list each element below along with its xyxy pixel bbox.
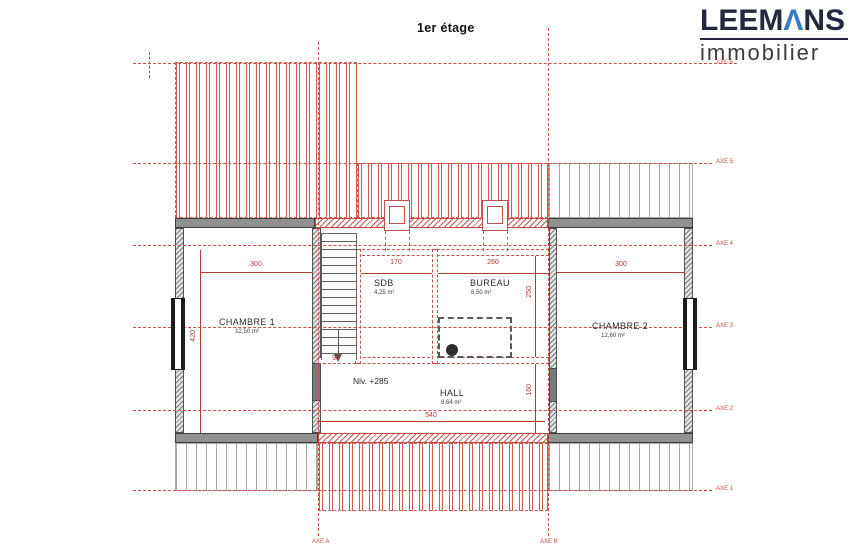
door-opening-chambre1 — [312, 363, 321, 401]
dim-line-hall-width — [317, 421, 545, 422]
axis-label-4: AXE 4 — [716, 241, 733, 248]
room-label-sdb: SDB — [374, 278, 394, 288]
axis-line-B — [548, 28, 549, 536]
room-area-hall: 8,64 m² — [441, 400, 461, 407]
window-chambre1-icon — [171, 298, 185, 370]
dim-bureau-width: 260 — [487, 259, 499, 267]
room-label-bureau: BUREAU — [470, 278, 510, 288]
roof-hatch-top-left — [175, 62, 357, 218]
dim-line-chambre2-width — [557, 272, 685, 273]
dim-line-chambre1-width — [200, 272, 313, 273]
room-label-hall: HALL — [440, 388, 464, 398]
room-area-bureau: 6,50 m² — [471, 290, 491, 297]
drain-point-icon — [446, 344, 458, 356]
duct-box-left-inner — [389, 206, 405, 224]
wall-top-middle — [315, 218, 548, 228]
room-area-sdb: 4,25 m² — [374, 290, 394, 297]
duct-box-left — [384, 200, 410, 231]
axis-label-A: AXE A — [312, 539, 329, 546]
axis-label-3: AXE 3 — [716, 323, 733, 330]
dim-sdb-width: 170 — [390, 259, 402, 267]
window-chambre2-icon — [683, 298, 697, 370]
staircase — [321, 233, 357, 360]
dim-line-bureau-depth — [535, 256, 536, 357]
stair-direction-arrow — [338, 330, 339, 356]
wall-bottom-right — [548, 433, 693, 443]
axis-stub-left — [149, 52, 150, 78]
dim-bureau-depth: 250 — [526, 286, 534, 298]
wall-hall-right — [549, 228, 557, 433]
axis-label-1: AXE 1 — [716, 486, 733, 493]
axis-line-1 — [133, 490, 712, 491]
logo-accent-letter: Λ — [783, 4, 803, 37]
roof-hatch-top-right — [548, 163, 693, 218]
duct-extension-line — [385, 231, 386, 251]
duct-box-right — [482, 200, 508, 231]
logo-text-pre: LEEM — [700, 4, 783, 37]
duct-extension-line — [507, 231, 508, 251]
logo: LEEMΛNS immobilier — [700, 6, 848, 65]
dim-line-bureau-width — [438, 273, 549, 274]
wall-bottom-middle — [318, 433, 548, 443]
axis-label-B: AXE B — [540, 539, 558, 546]
dim-line-chambre1-depth — [200, 250, 201, 433]
dim-line-sdb-width — [361, 273, 432, 274]
duct-extension-line — [409, 231, 410, 251]
axis-line-2 — [133, 410, 712, 411]
door-opening-chambre2 — [549, 368, 557, 402]
wall-top-left — [175, 218, 315, 228]
dim-stair-width: 90 — [332, 355, 340, 363]
room-label-chambre2: CHAMBRE 2 — [592, 321, 648, 331]
axis-line-6 — [133, 63, 737, 64]
page-title: 1er étage — [417, 21, 475, 35]
duct-extension-line — [483, 231, 484, 251]
dim-line-hall-depth — [535, 364, 536, 433]
logo-text-post: NS — [803, 4, 845, 37]
roof-hatch-bottom-right — [548, 443, 693, 491]
logo-subtitle: immobilier — [700, 41, 848, 65]
dim-hall-depth: 160 — [526, 384, 534, 396]
roof-hatch-bottom-left — [175, 443, 318, 491]
wall-top-right — [548, 218, 693, 228]
room-area-chambre2: 12,60 m² — [601, 333, 625, 340]
dim-chambre2-width: 300 — [615, 261, 627, 269]
roof-hatch-bottom-middle — [318, 443, 548, 511]
axis-line-A — [318, 42, 319, 536]
floor-plan-sheet: 1er étage LEEMΛNS immobilier AXE 6 AXE 5… — [0, 0, 850, 550]
dim-chambre1-width: 300 — [250, 261, 262, 269]
duct-box-right-inner — [487, 206, 503, 224]
room-label-chambre1: CHAMBRE 1 — [219, 317, 275, 327]
axis-label-5: AXE 5 — [716, 159, 733, 166]
axis-line-5 — [133, 163, 712, 164]
logo-wordmark: LEEMΛNS — [700, 6, 848, 36]
axis-line-4 — [133, 245, 712, 246]
level-note: Niv. +285 — [353, 376, 389, 386]
dim-hall-width: 540 — [425, 412, 437, 420]
axis-label-2: AXE 2 — [716, 406, 733, 413]
wall-bottom-left — [175, 433, 318, 443]
room-area-chambre1: 12,50 m² — [235, 329, 259, 336]
wall-stair-left — [312, 228, 321, 433]
dim-chambre1-depth: 420 — [190, 330, 198, 342]
